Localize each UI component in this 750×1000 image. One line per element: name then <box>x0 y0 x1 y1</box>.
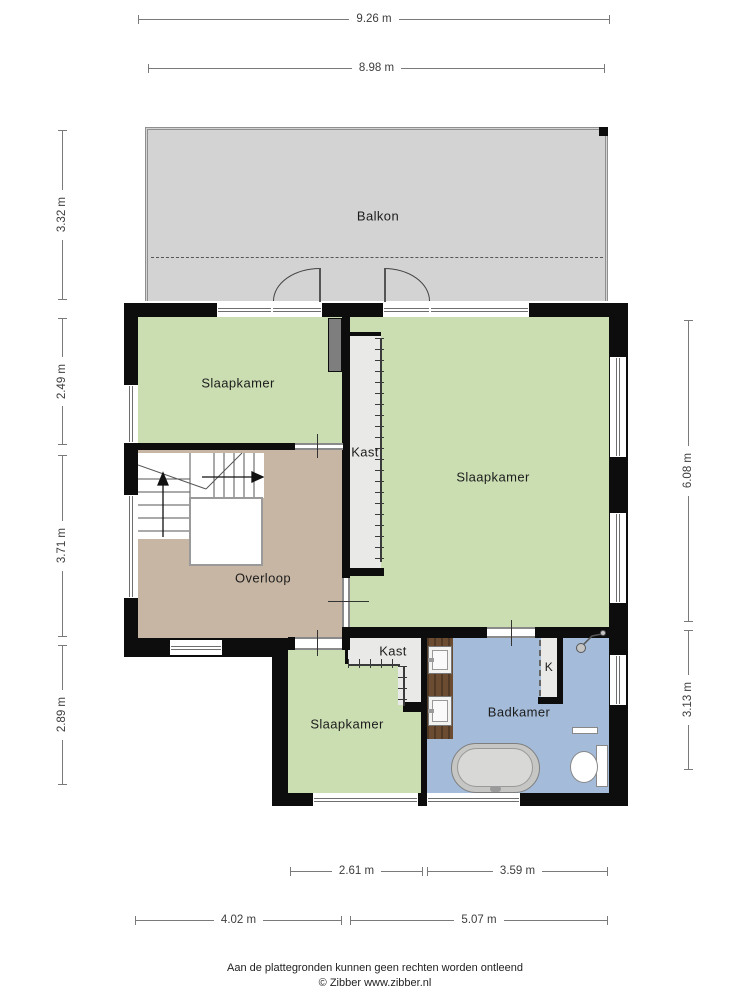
window <box>427 793 520 806</box>
chimney-duct <box>328 318 342 372</box>
stairs <box>138 449 264 569</box>
toilet-bowl <box>570 751 598 783</box>
dim-left-1: 3.32 m <box>55 130 69 300</box>
bathtub <box>451 743 540 793</box>
door-tick <box>317 434 318 458</box>
door-leaf <box>319 268 321 302</box>
window <box>610 513 626 603</box>
door-opening <box>342 578 350 627</box>
dim-bottom-upper-2: 3.59 m <box>427 864 608 878</box>
bathtub-basin <box>457 748 533 787</box>
label-slaapkamer-topleft: Slaapkamer <box>201 376 274 391</box>
sink-basin <box>432 650 448 670</box>
sink <box>428 646 452 674</box>
dim-label: 3.32 m <box>56 190 68 239</box>
dim-label: 6.08 m <box>682 446 694 495</box>
wall-segment <box>288 637 295 650</box>
window <box>430 303 529 317</box>
toilet-shelf <box>572 727 598 734</box>
dim-top-total: 9.26 m <box>138 12 610 26</box>
dim-bottom-lower-1: 4.02 m <box>135 913 342 927</box>
label-slaapkamer-right: Slaapkamer <box>456 470 529 485</box>
dim-label: 4.02 m <box>214 914 263 926</box>
label-overloop: Overloop <box>235 571 291 586</box>
door-leaf <box>384 268 386 302</box>
balcony-corner-post <box>599 127 608 136</box>
wall-segment <box>322 303 383 317</box>
dim-right-1: 6.08 m <box>681 320 695 622</box>
label-balkon: Balkon <box>357 209 399 224</box>
faucet-icon <box>428 709 434 713</box>
label-kast-bottom: Kast <box>379 644 407 659</box>
dim-left-3: 3.71 m <box>55 455 69 637</box>
wall-segment <box>538 697 563 704</box>
door-tick <box>511 620 512 646</box>
dim-label: 9.26 m <box>349 13 398 25</box>
dim-label: 8.98 m <box>352 62 401 74</box>
wall-segment <box>124 303 217 317</box>
window <box>610 357 626 457</box>
closet-dashed-door <box>539 640 541 696</box>
dim-label: 5.07 m <box>454 914 503 926</box>
dim-label: 3.59 m <box>493 865 542 877</box>
label-kast-k: K <box>545 660 553 674</box>
door-tick <box>317 630 318 656</box>
dim-right-2: 3.13 m <box>681 630 695 770</box>
closet-folding-door <box>398 666 407 706</box>
door-threshold <box>272 303 322 317</box>
wall-segment <box>342 568 384 576</box>
wall-segment <box>272 638 288 806</box>
wall-segment <box>124 303 138 657</box>
dim-top-inner: 8.98 m <box>148 61 605 75</box>
door-opening <box>295 637 342 650</box>
dim-left-4: 2.89 m <box>55 645 69 785</box>
shower-icon <box>572 628 608 656</box>
label-slaapkamer-bottom: Slaapkamer <box>310 717 383 732</box>
door-opening <box>295 443 343 450</box>
window <box>170 640 222 655</box>
wall-segment <box>342 317 350 578</box>
balcony-dashed-line <box>151 257 603 258</box>
label-badkamer: Badkamer <box>488 705 550 720</box>
dim-label: 3.71 m <box>56 521 68 570</box>
footer-disclaimer: Aan de plattegronden kunnen geen rechten… <box>0 962 750 974</box>
sink <box>428 696 452 726</box>
wall-segment <box>343 627 487 638</box>
floorplan-canvas: Balkon <box>0 0 750 1000</box>
window <box>217 303 272 317</box>
closet-folding-door <box>348 659 400 668</box>
sink-basin <box>432 700 448 722</box>
dim-label: 2.61 m <box>332 865 381 877</box>
dim-left-2: 2.49 m <box>55 318 69 445</box>
wall-segment <box>557 637 563 704</box>
door-threshold <box>383 303 430 317</box>
window <box>124 385 138 443</box>
dim-bottom-lower-2: 5.07 m <box>350 913 608 927</box>
window <box>124 495 138 598</box>
footer-copyright: © Zibber www.zibber.nl <box>0 977 750 989</box>
window <box>313 793 418 806</box>
wall-segment <box>350 332 381 336</box>
door-tick <box>328 601 369 602</box>
faucet-icon <box>428 658 434 662</box>
dim-label: 3.13 m <box>682 675 694 724</box>
label-kast-middle: Kast <box>351 445 379 460</box>
dim-label: 2.49 m <box>56 357 68 406</box>
dim-label: 2.89 m <box>56 690 68 739</box>
window <box>610 655 626 705</box>
dim-bottom-upper-1: 2.61 m <box>290 864 423 878</box>
bathtub-drain <box>490 786 501 792</box>
